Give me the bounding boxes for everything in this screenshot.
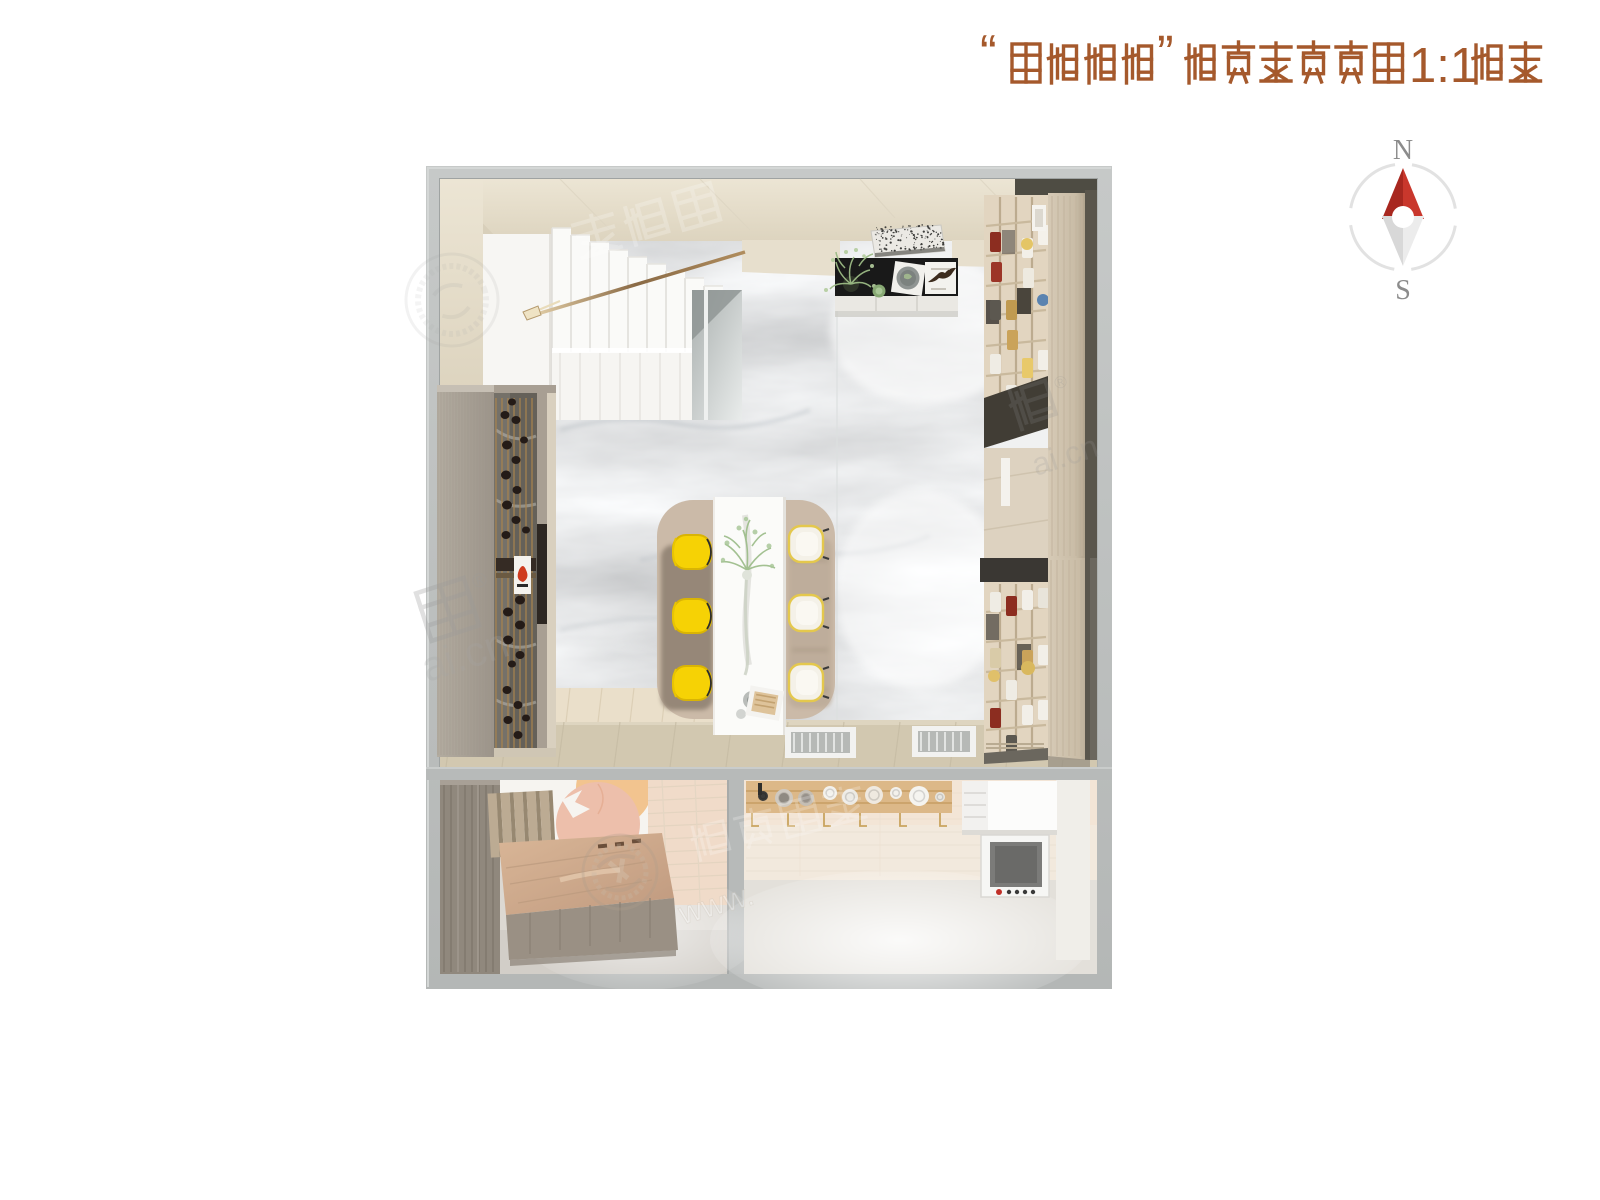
svg-text:”: ”: [1157, 25, 1174, 81]
svg-text:S: S: [1395, 275, 1411, 306]
svg-text:N: N: [1393, 135, 1413, 166]
svg-text:1:1: 1:1: [1409, 39, 1477, 93]
svg-text:“: “: [980, 25, 997, 81]
